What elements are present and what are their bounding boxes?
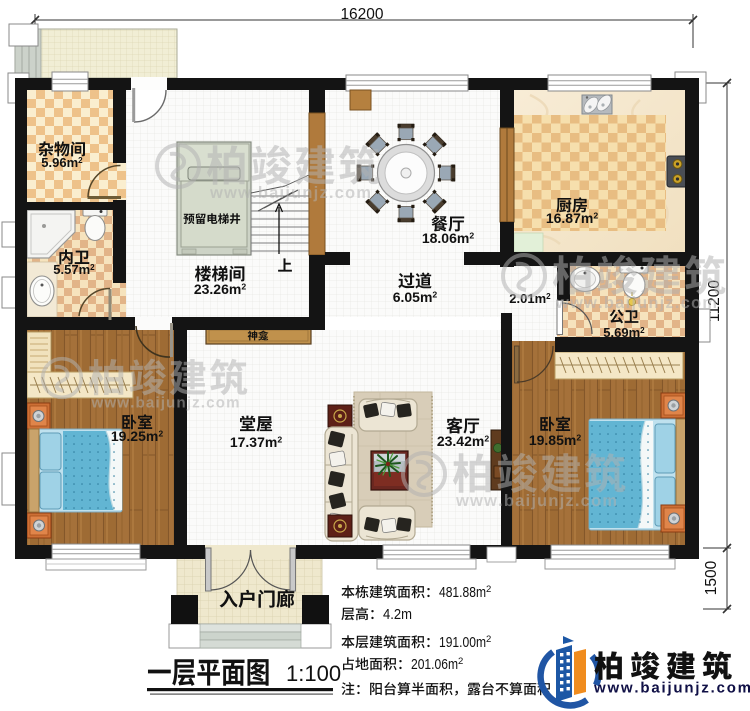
svg-text:18.06m2: 18.06m2 bbox=[422, 230, 474, 246]
svg-text:5.69m2: 5.69m2 bbox=[603, 325, 645, 340]
svg-text:191.00m: 191.00m bbox=[439, 634, 486, 651]
svg-text:481.88m: 481.88m bbox=[439, 584, 486, 601]
svg-text:2: 2 bbox=[486, 584, 491, 595]
svg-text:6.05m2: 6.05m2 bbox=[393, 289, 438, 305]
svg-text:16.87m2: 16.87m2 bbox=[546, 210, 598, 226]
svg-text:23.26m2: 23.26m2 bbox=[194, 281, 246, 297]
svg-text:19.85m2: 19.85m2 bbox=[529, 432, 581, 448]
svg-text:4.2m: 4.2m bbox=[383, 606, 412, 623]
svg-text:5.57m2: 5.57m2 bbox=[53, 262, 95, 277]
svg-text:5.96m2: 5.96m2 bbox=[41, 155, 83, 170]
svg-text:2: 2 bbox=[458, 656, 463, 667]
svg-text:16200: 16200 bbox=[340, 6, 383, 23]
svg-text:2: 2 bbox=[486, 634, 491, 645]
svg-text:1500: 1500 bbox=[703, 560, 720, 595]
svg-text:201.06m: 201.06m bbox=[411, 656, 458, 673]
svg-text:1:100: 1:100 bbox=[286, 661, 341, 686]
svg-text:19.25m2: 19.25m2 bbox=[111, 428, 163, 444]
svg-text:17.37m2: 17.37m2 bbox=[230, 434, 282, 450]
svg-text:23.42m2: 23.42m2 bbox=[437, 433, 489, 449]
